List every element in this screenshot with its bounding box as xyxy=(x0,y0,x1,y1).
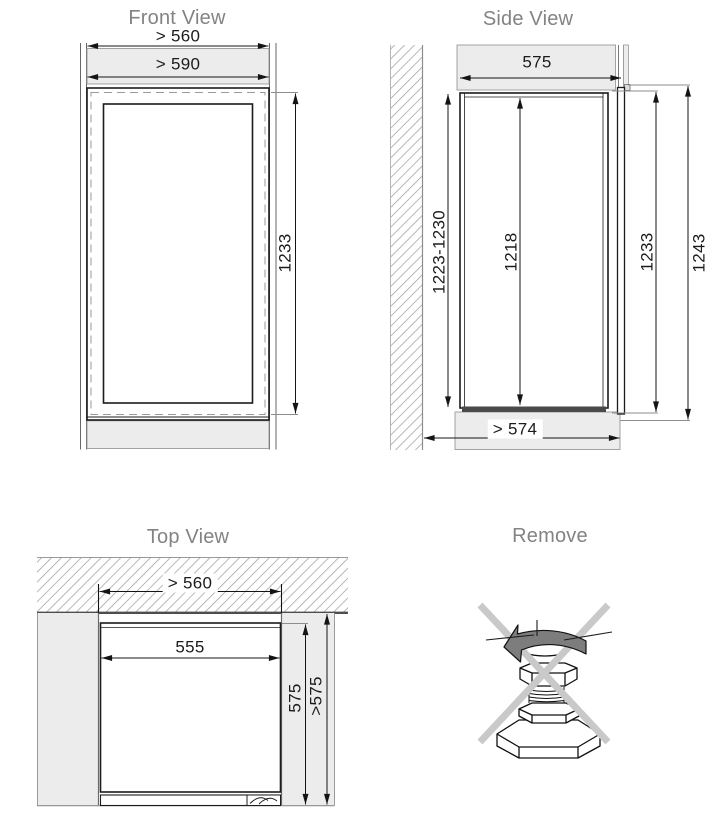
front-dim-min-niche-width: > 560 xyxy=(156,28,201,45)
top-view-title: Top View xyxy=(147,527,229,547)
side-view-drawing xyxy=(360,0,724,480)
leveling-foot-illustration xyxy=(497,640,600,758)
top-dim-appliance-width: 555 xyxy=(175,639,204,656)
rear-wall-hatch xyxy=(390,45,423,450)
side-dim-door-height: 1233 xyxy=(639,232,656,271)
remove-title: Remove xyxy=(512,526,588,546)
door-slab xyxy=(618,85,631,415)
door-outline xyxy=(104,104,253,403)
bottom-plinth-panel xyxy=(87,421,269,449)
cabinet-body xyxy=(460,93,608,412)
side-dim-inner-height: 1218 xyxy=(503,232,520,271)
side-view-panel: Side View 575 1223-1230 1218 1233 1243 >… xyxy=(360,0,724,480)
top-view-panel: Top View > 560 555 575 >575 xyxy=(0,480,360,822)
top-dim-min-niche-depth: >575 xyxy=(308,676,325,716)
top-dim-appliance-depth: 575 xyxy=(287,683,304,712)
front-dim-min-furniture-width: > 590 xyxy=(156,56,201,73)
side-dim-total-height: 1243 xyxy=(691,233,708,272)
remove-panel: Remove xyxy=(360,480,724,822)
side-dim-niche-height: 1223-1230 xyxy=(431,210,448,294)
front-view-panel: Front View > 560 > 590 1233 xyxy=(0,0,360,480)
door-strip xyxy=(101,795,281,806)
front-dim-appliance-height: 1233 xyxy=(277,233,294,272)
front-view-title: Front View xyxy=(128,8,225,28)
side-dim-min-depth-bottom: > 574 xyxy=(488,420,543,439)
installation-diagram: Front View > 560 > 590 1233 xyxy=(0,0,724,822)
top-dim-min-niche-width: > 560 xyxy=(163,574,218,593)
furniture-front-edge xyxy=(619,45,624,90)
side-dim-niche-depth: 575 xyxy=(522,54,551,71)
side-view-title: Side View xyxy=(483,9,573,29)
furniture-front-strip xyxy=(624,45,629,90)
